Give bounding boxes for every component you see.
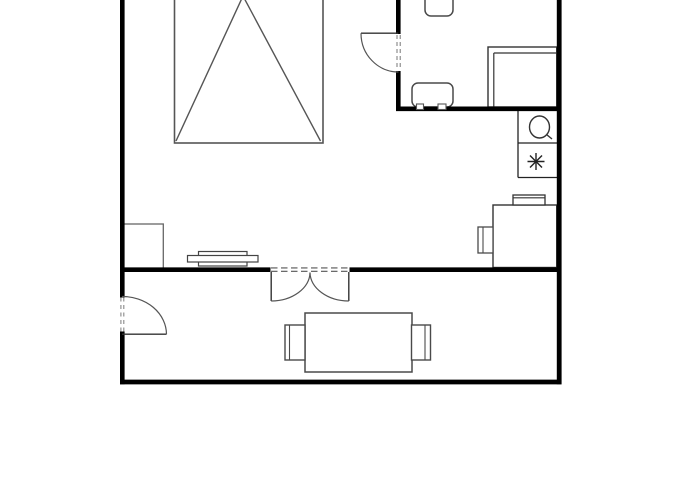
dining-chair-left (285, 325, 305, 360)
office-desk (488, 47, 557, 107)
floorplan-canvas (0, 0, 700, 500)
office-chair-top (425, 0, 453, 16)
dining-chair-right (412, 325, 431, 360)
study-desk (493, 205, 557, 268)
furniture-layer (123, 0, 558, 372)
sink-fixture (530, 116, 553, 139)
office-door (361, 33, 400, 72)
floorplan-svg (0, 0, 700, 500)
dining-table (305, 313, 412, 372)
bed (175, 0, 324, 143)
star-fixture-icon (528, 153, 545, 170)
desk-monitor (513, 195, 545, 205)
office-chair-side (412, 83, 453, 107)
wall-shelf (188, 252, 259, 267)
desk-chair (478, 227, 493, 253)
wardrobe (123, 224, 164, 269)
entry-door (121, 296, 167, 334)
double-door (271, 268, 349, 301)
